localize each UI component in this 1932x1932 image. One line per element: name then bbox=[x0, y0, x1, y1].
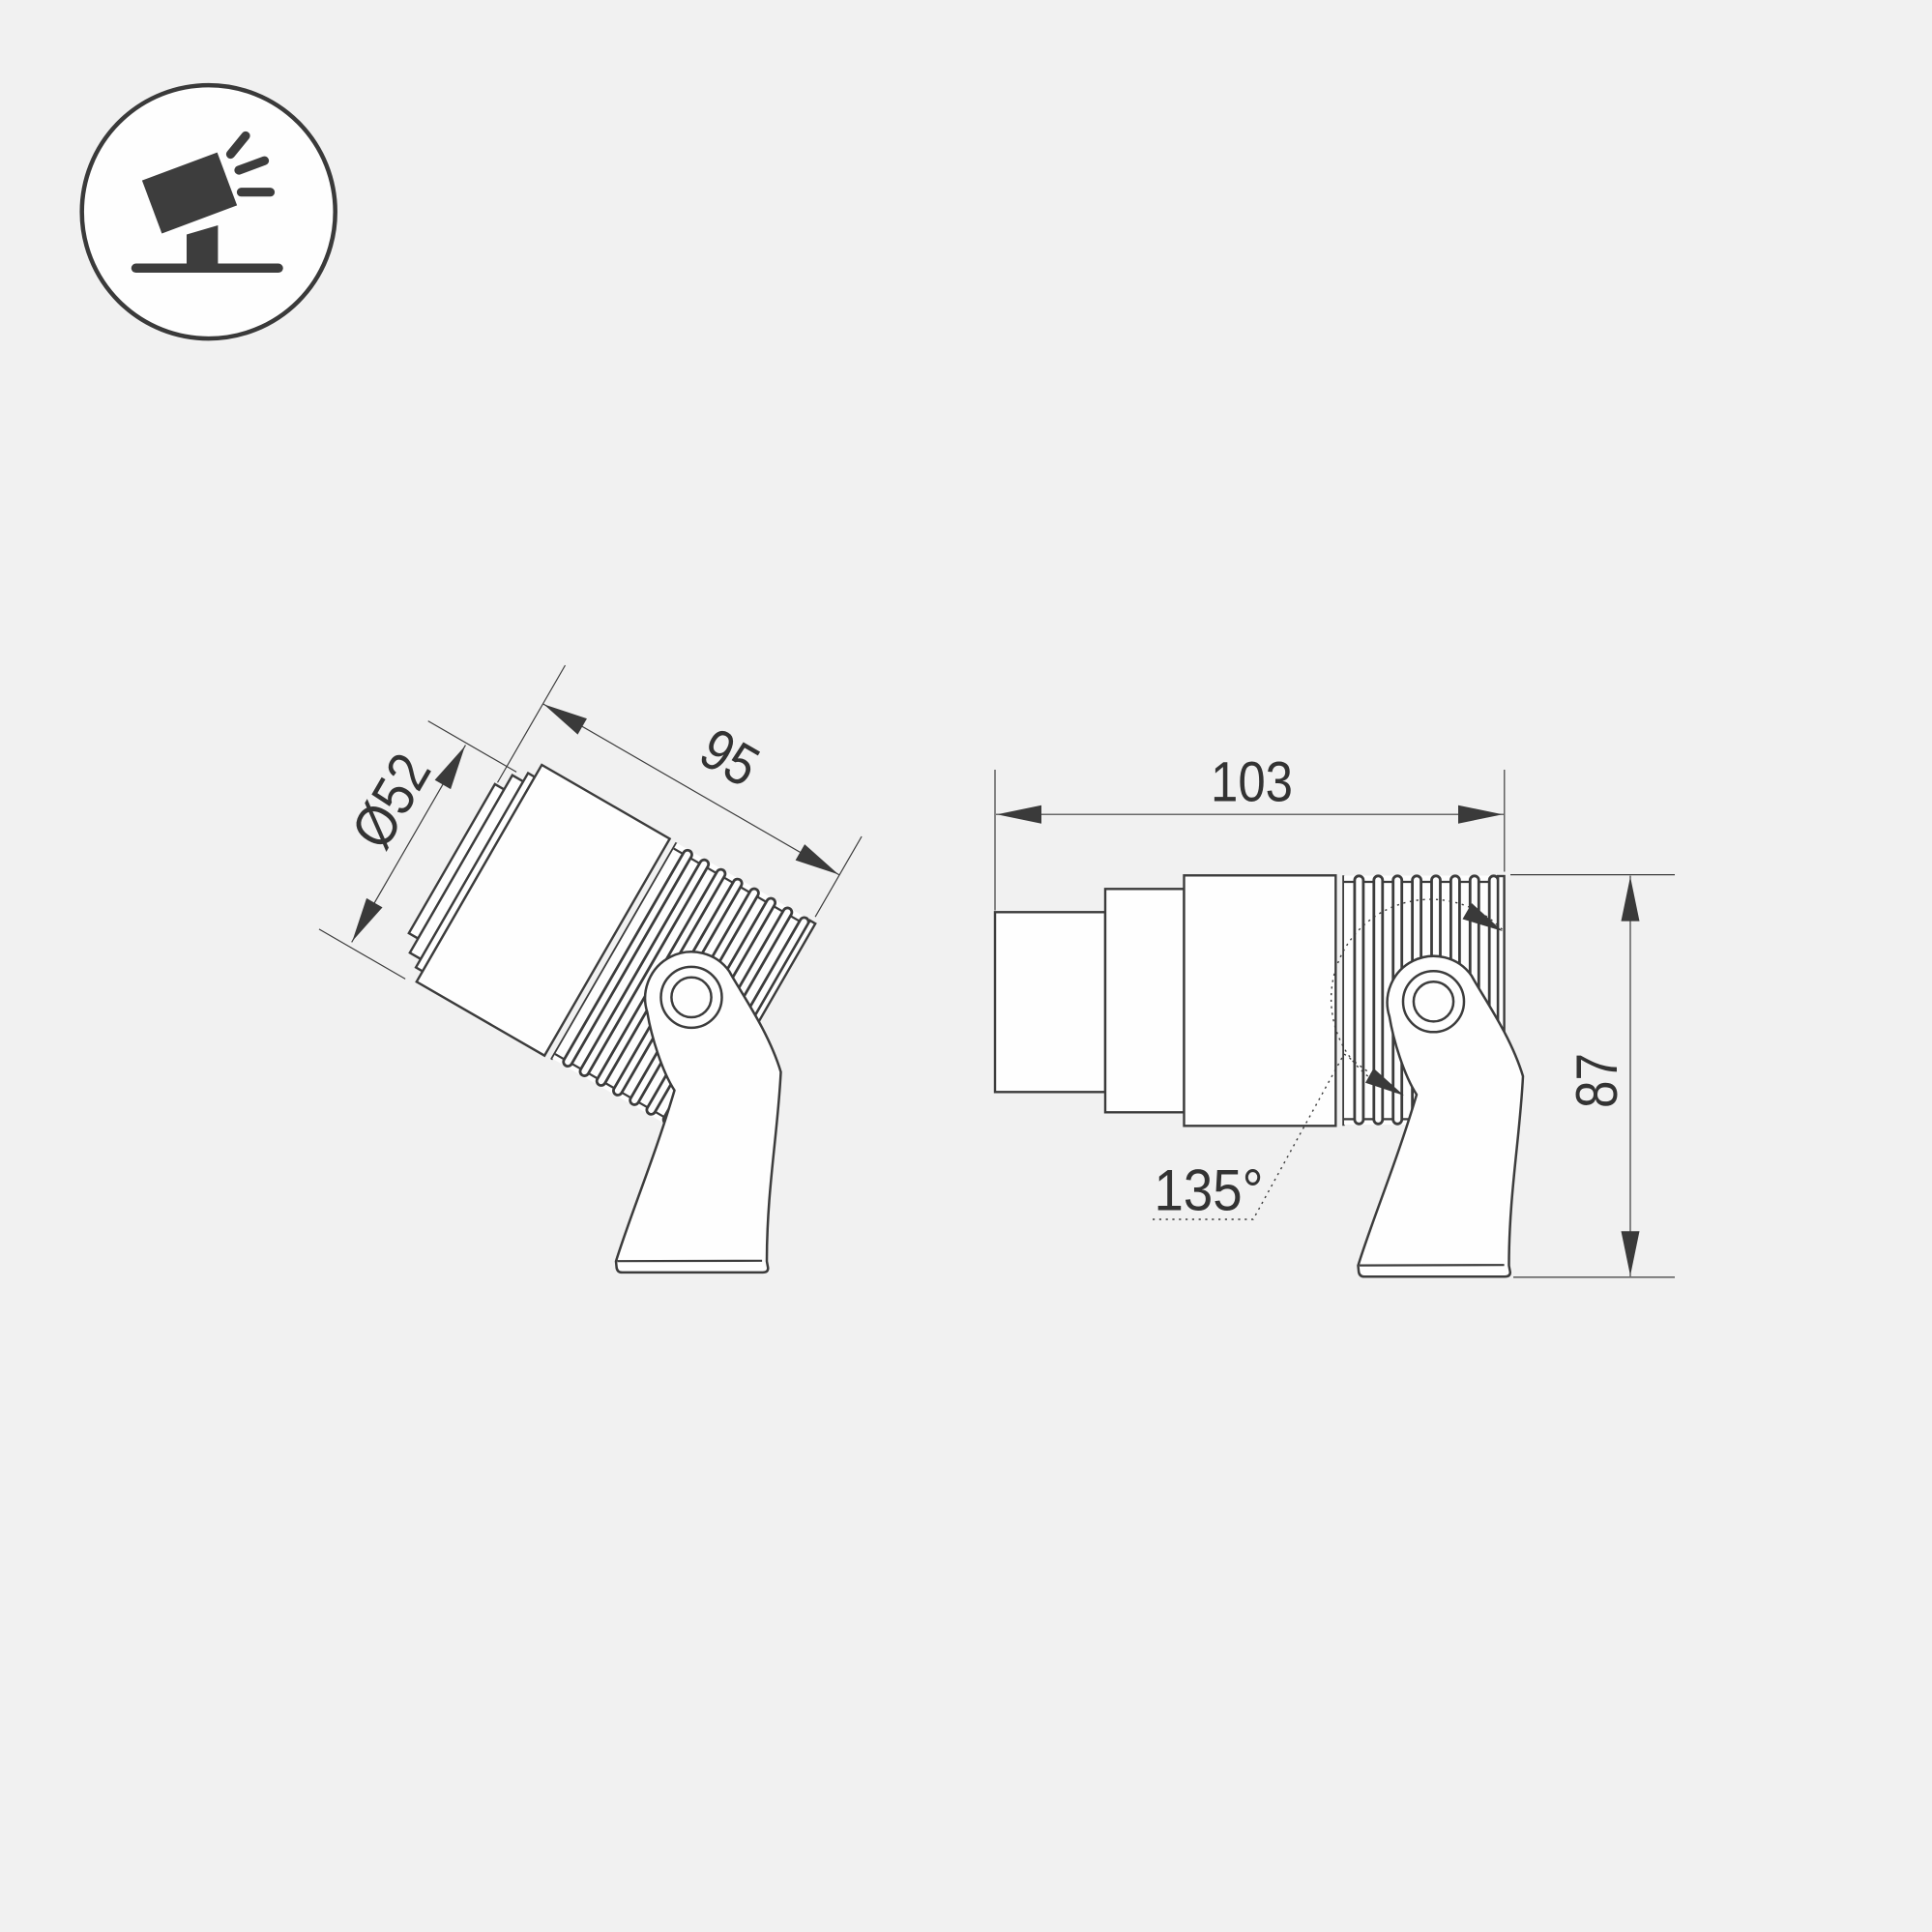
svg-text:103: 103 bbox=[1211, 751, 1293, 814]
svg-text:135°: 135° bbox=[1155, 1158, 1264, 1223]
svg-text:87: 87 bbox=[1565, 1053, 1629, 1108]
